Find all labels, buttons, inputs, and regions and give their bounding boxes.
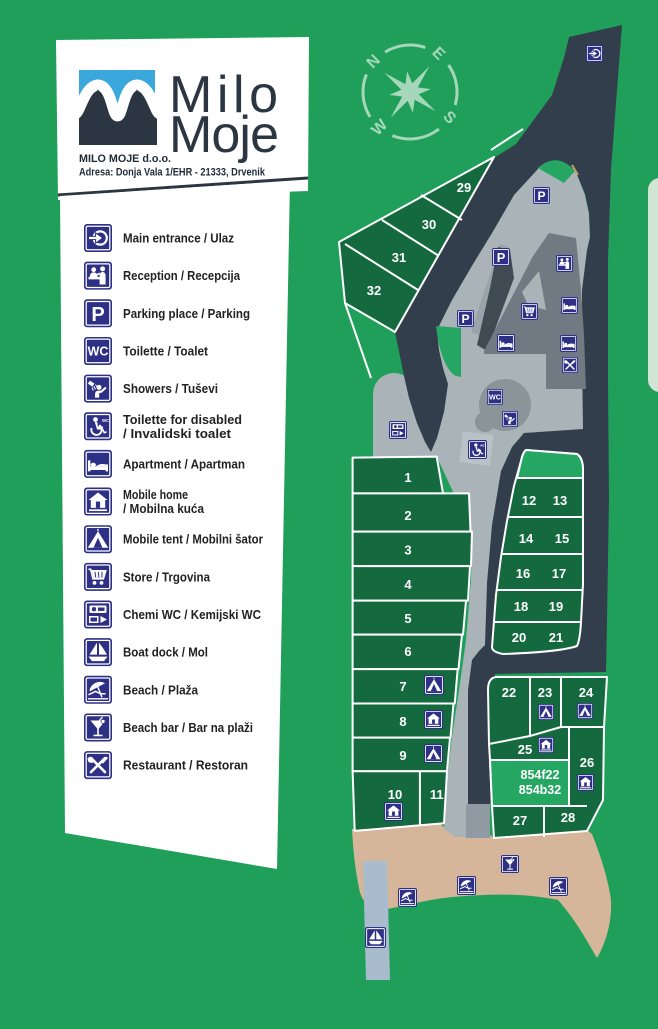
svg-text:15: 15	[555, 531, 569, 546]
svg-text:1: 1	[404, 470, 411, 485]
svg-text:31: 31	[392, 250, 406, 265]
svg-text:2: 2	[404, 508, 411, 523]
svg-text:Showers / Tuševi: Showers / Tuševi	[123, 382, 218, 396]
svg-text:20: 20	[512, 630, 526, 645]
svg-text:18: 18	[514, 599, 528, 614]
svg-text:32: 32	[367, 283, 381, 298]
svg-text:Apartment / Apartman: Apartment / Apartman	[123, 457, 245, 471]
svg-text:Mobile home: Mobile home	[123, 488, 188, 502]
svg-text:6: 6	[404, 644, 411, 659]
svg-text:Beach / Plaža: Beach / Plaža	[123, 683, 199, 697]
svg-text:854f22: 854f22	[521, 768, 560, 782]
svg-text:Chemi WC / Kemijski WC: Chemi WC / Kemijski WC	[123, 608, 261, 622]
svg-text:7: 7	[399, 679, 406, 694]
svg-text:10: 10	[388, 787, 402, 802]
svg-text:21: 21	[549, 630, 563, 645]
svg-text:Boat dock / Mol: Boat dock / Mol	[123, 646, 208, 660]
svg-text:30: 30	[422, 217, 436, 232]
svg-text:27: 27	[513, 813, 527, 828]
svg-text:Moje: Moje	[169, 106, 282, 164]
svg-text:Restaurant / Restoran: Restaurant / Restoran	[123, 759, 248, 773]
svg-text:23: 23	[538, 685, 552, 700]
svg-text:26: 26	[580, 755, 594, 770]
svg-text:MILO MOJE d.o.o.: MILO MOJE d.o.o.	[79, 153, 171, 165]
svg-text:28: 28	[561, 810, 575, 825]
svg-text:5: 5	[404, 611, 411, 626]
svg-text:12: 12	[522, 493, 536, 508]
svg-text:11: 11	[430, 787, 444, 802]
svg-text:13: 13	[553, 493, 567, 508]
svg-text:854b32: 854b32	[519, 783, 561, 797]
svg-text:/ Mobilna kuća: / Mobilna kuća	[123, 502, 205, 516]
svg-text:Parking place / Parking: Parking place / Parking	[123, 307, 250, 321]
svg-text:24: 24	[579, 685, 594, 700]
svg-text:19: 19	[549, 599, 563, 614]
svg-text:16: 16	[516, 566, 530, 581]
svg-text:4: 4	[404, 577, 412, 592]
svg-text:3: 3	[404, 543, 411, 558]
svg-text:Toilette for disabled: Toilette for disabled	[123, 413, 242, 427]
svg-text:14: 14	[519, 531, 534, 546]
svg-text:/ Invalidski toalet: / Invalidski toalet	[123, 427, 232, 441]
svg-text:Main entrance / Ulaz: Main entrance / Ulaz	[123, 232, 234, 246]
svg-text:25: 25	[518, 742, 532, 757]
svg-text:8: 8	[399, 714, 406, 729]
svg-text:Reception / Recepcija: Reception / Recepcija	[123, 269, 241, 283]
svg-text:9: 9	[399, 748, 406, 763]
svg-text:Beach bar / Bar na plaži: Beach bar / Bar na plaži	[123, 721, 253, 735]
svg-text:Mobile tent / Mobilni šator: Mobile tent / Mobilni šator	[123, 533, 263, 547]
svg-text:29: 29	[457, 180, 471, 195]
svg-text:17: 17	[552, 566, 566, 581]
svg-text:22: 22	[502, 685, 516, 700]
svg-text:Toilette / Toalet: Toilette / Toalet	[123, 344, 209, 358]
svg-text:Adresa: Donja Vala 1/EHR - 213: Adresa: Donja Vala 1/EHR - 21333, Drveni…	[79, 167, 266, 179]
svg-text:Store / Trgovina: Store / Trgovina	[123, 570, 211, 584]
